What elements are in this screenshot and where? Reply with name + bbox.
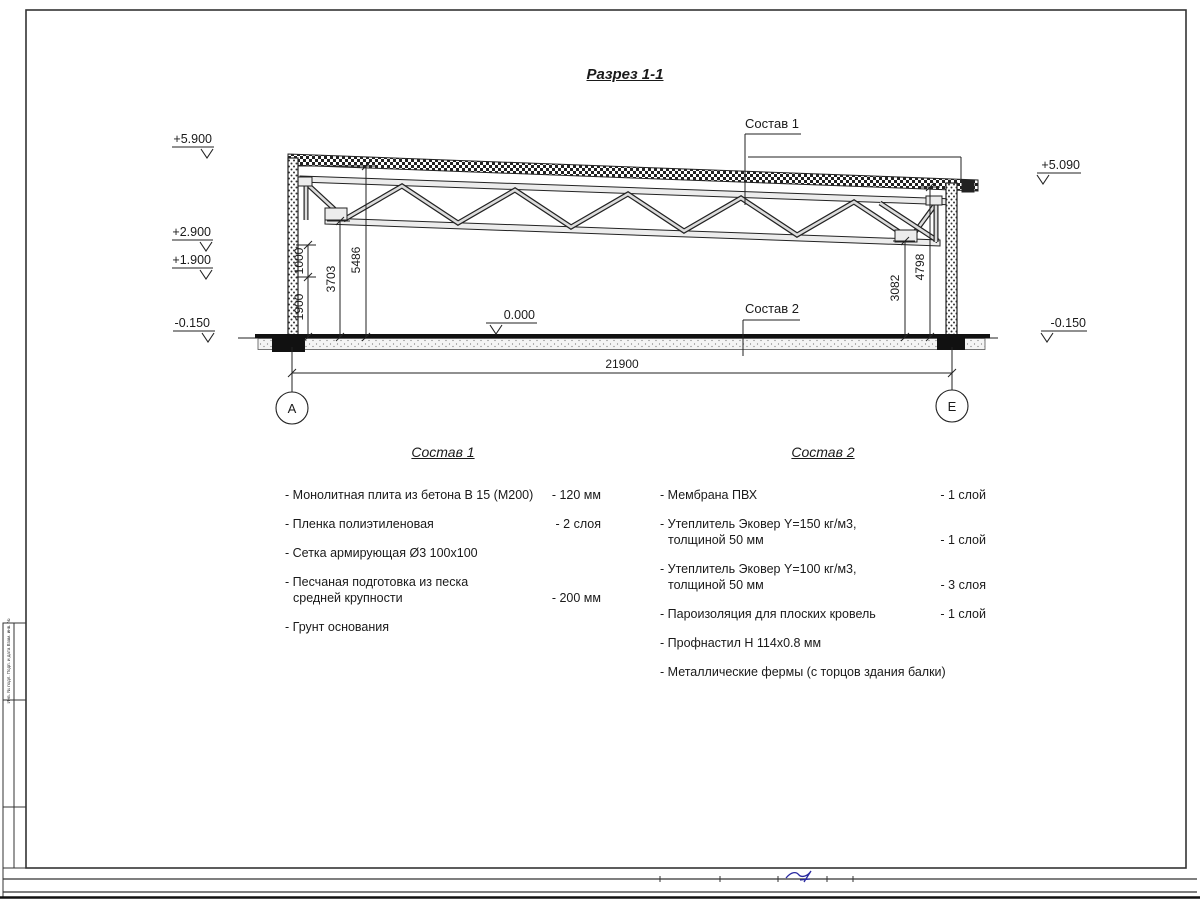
- list-item: - Сетка армирующая Ø3 100х100: [285, 545, 601, 561]
- axis-marker-e: Е: [936, 390, 968, 422]
- svg-text:А: А: [288, 401, 297, 416]
- list-item: - Пароизоляция для плоских кровель - 1 с…: [660, 606, 986, 622]
- right-wall: [946, 183, 957, 338]
- elevation-1900: +1.900: [172, 253, 213, 279]
- dim-1000: 1000: [292, 247, 306, 274]
- axis-marker-a: А: [276, 392, 308, 424]
- dim-21900: 21900: [605, 357, 639, 371]
- stamp-column-text: Инв. № подл. Подп. и дата Взам. инв. №: [6, 618, 11, 703]
- composition1-list-title: Состав 1: [285, 444, 601, 460]
- list-item: - Мембрана ПВХ - 1 слой: [660, 487, 986, 503]
- dim-3082: 3082: [888, 274, 902, 301]
- svg-text:-0.150: -0.150: [1051, 316, 1086, 330]
- svg-text:Состав 2: Состав 2: [745, 301, 799, 316]
- list-item: - Утеплитель Эковер Y=100 кг/м3,толщиной…: [660, 561, 986, 593]
- svg-text:+5.090: +5.090: [1041, 158, 1080, 172]
- elevation-minus150-left: -0.150: [173, 316, 215, 342]
- list-item: - Песчаная подготовка из пескасредней кр…: [285, 574, 601, 606]
- right-footing: [937, 334, 965, 350]
- elevation-minus150-right: -0.150: [1041, 316, 1087, 342]
- svg-text:Состав 1: Состав 1: [745, 116, 799, 131]
- list-item: - Металлические фермы (с торцов здания б…: [660, 664, 986, 680]
- svg-text:+2.900: +2.900: [172, 225, 211, 239]
- elevation-5090: +5.090: [1037, 158, 1081, 184]
- list-item: - Пленка полиэтиленовая - 2 слоя: [285, 516, 601, 532]
- left-footing: [272, 334, 305, 352]
- elevation-zero: 0.000: [486, 308, 537, 334]
- dim-1900: 1900: [292, 293, 306, 320]
- composition2-list: Состав 2 - Мембрана ПВХ - 1 слой - Утепл…: [660, 444, 986, 693]
- floor-slab: [238, 334, 998, 352]
- list-item: - Монолитная плита из бетона В 15 (М200)…: [285, 487, 601, 503]
- list-item: - Утеплитель Эковер Y=150 кг/м3,толщиной…: [660, 516, 986, 548]
- signature-mark: [786, 871, 811, 882]
- list-item: - Грунт основания: [285, 619, 601, 635]
- list-item: - Профнастил Н 114х0.8 мм: [660, 635, 986, 651]
- composition1-list: Состав 1 - Монолитная плита из бетона В …: [285, 444, 601, 648]
- dim-4798: 4798: [913, 253, 927, 280]
- roof-deck: [288, 154, 978, 192]
- svg-text:+1.900: +1.900: [172, 253, 211, 267]
- composition2-list-title: Состав 2: [660, 444, 986, 460]
- dim-3703: 3703: [324, 265, 338, 292]
- svg-text:+5.900: +5.900: [173, 132, 212, 146]
- svg-text:-0.150: -0.150: [175, 316, 210, 330]
- drawing-sheet: Разрез 1-1: [0, 0, 1200, 900]
- dim-5486: 5486: [349, 246, 363, 273]
- elevation-2900: +2.900: [172, 225, 213, 251]
- svg-text:0.000: 0.000: [504, 308, 535, 322]
- elevation-5900: +5.900: [172, 132, 214, 158]
- svg-text:Е: Е: [948, 399, 957, 414]
